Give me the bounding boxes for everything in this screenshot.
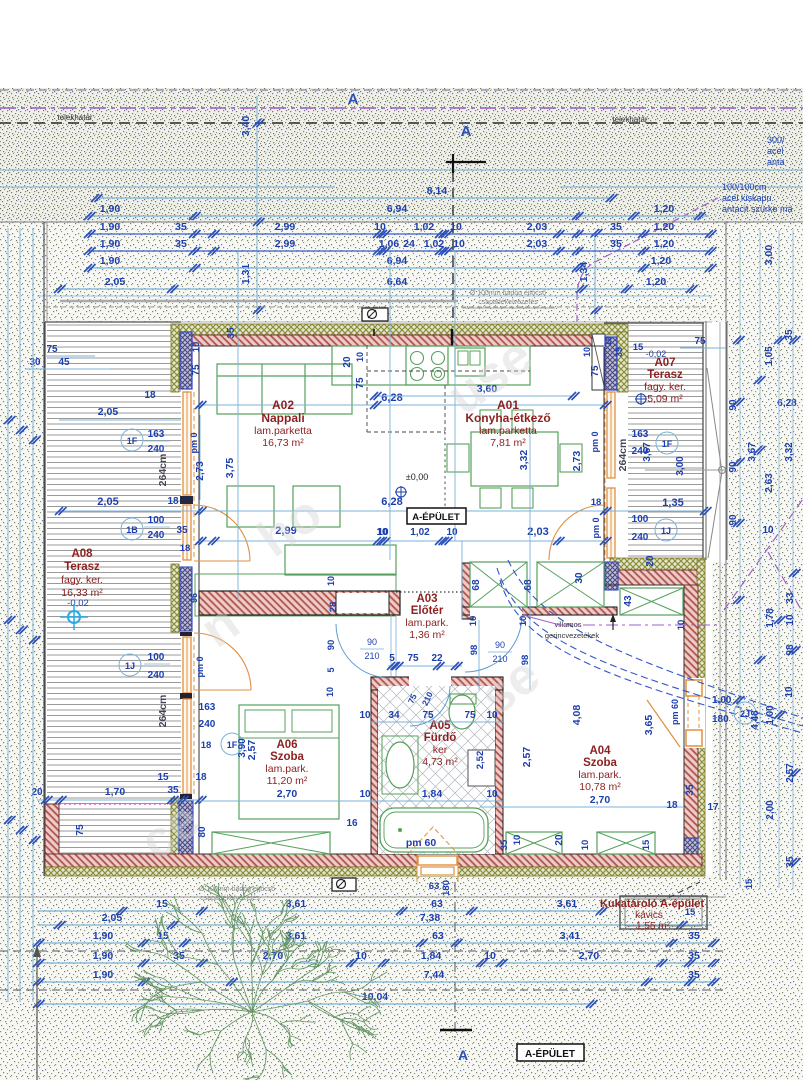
svg-text:35: 35 (785, 856, 796, 868)
svg-text:10: 10 (326, 576, 336, 586)
svg-text:fagy. ker.: fagy. ker. (61, 574, 103, 586)
svg-text:2,70: 2,70 (277, 788, 298, 800)
svg-text:20: 20 (342, 356, 353, 368)
svg-text:240: 240 (148, 530, 165, 541)
svg-text:16,73 m²: 16,73 m² (262, 437, 304, 449)
svg-text:10: 10 (453, 238, 465, 250)
svg-text:1,20: 1,20 (654, 203, 675, 215)
svg-text:1,84: 1,84 (421, 950, 442, 962)
svg-text:264cm: 264cm (617, 439, 629, 472)
svg-text:1,06: 1,06 (379, 238, 400, 250)
svg-text:Előtér: Előtér (411, 605, 444, 617)
svg-text:2,73: 2,73 (571, 451, 583, 472)
svg-text:90: 90 (728, 399, 739, 411)
svg-text:telekhatár: telekhatár (612, 115, 647, 124)
svg-text:1F: 1F (127, 436, 138, 446)
svg-text:pm 60: pm 60 (670, 699, 680, 725)
svg-text:33: 33 (785, 592, 796, 604)
svg-text:300/: 300/ (767, 135, 785, 145)
svg-text:18: 18 (144, 390, 156, 401)
svg-text:10: 10 (325, 687, 335, 697)
svg-text:3,67: 3,67 (747, 442, 758, 462)
svg-text:35: 35 (173, 950, 185, 962)
svg-text:1,36 m²: 1,36 m² (409, 629, 445, 641)
svg-text:lam.parketta: lam.parketta (479, 425, 537, 437)
svg-text:18: 18 (201, 740, 212, 751)
svg-text:lam.park.: lam.park. (405, 617, 448, 629)
svg-text:3,40: 3,40 (240, 116, 252, 137)
svg-text:2,70: 2,70 (590, 794, 611, 806)
svg-text:10: 10 (486, 789, 498, 800)
svg-text:Szoba: Szoba (270, 751, 304, 763)
svg-text:7,81 m²: 7,81 m² (490, 437, 526, 449)
svg-text:±0,00: ±0,00 (406, 472, 428, 482)
svg-text:90: 90 (367, 637, 377, 647)
svg-text:pm 0: pm 0 (195, 656, 205, 677)
svg-text:10: 10 (359, 710, 371, 721)
svg-text:pm 0: pm 0 (590, 431, 600, 452)
svg-text:35: 35 (610, 238, 622, 250)
svg-text:1,34: 1,34 (578, 262, 590, 283)
svg-text:75: 75 (75, 824, 86, 836)
svg-text:75: 75 (590, 365, 601, 377)
svg-text:10: 10 (359, 789, 371, 800)
svg-text:4,48: 4,48 (750, 710, 761, 730)
svg-text:1F: 1F (662, 439, 673, 449)
svg-text:A: A (461, 123, 472, 140)
svg-text:35: 35 (175, 238, 187, 250)
svg-text:63: 63 (431, 898, 443, 910)
svg-text:2,05: 2,05 (105, 276, 126, 288)
svg-text:Terasz: Terasz (647, 369, 683, 381)
svg-text:Terasz: Terasz (64, 561, 100, 573)
svg-text:10: 10 (762, 525, 774, 536)
svg-text:98: 98 (785, 644, 796, 656)
svg-text:gerincvezetékek: gerincvezetékek (545, 631, 599, 640)
svg-text:A02: A02 (272, 398, 294, 412)
svg-text:10: 10 (355, 352, 365, 362)
svg-text:90: 90 (495, 640, 505, 650)
svg-text:15: 15 (157, 772, 169, 783)
svg-text:-0,02: -0,02 (646, 349, 667, 359)
svg-text:100: 100 (148, 652, 165, 663)
svg-text:35: 35 (610, 221, 622, 233)
svg-text:10: 10 (784, 686, 795, 698)
svg-text:-0,02: -0,02 (67, 598, 89, 609)
svg-text:63: 63 (429, 881, 440, 892)
svg-text:264cm: 264cm (157, 695, 169, 728)
svg-text:6,28: 6,28 (381, 392, 402, 404)
svg-text:75: 75 (46, 344, 58, 355)
svg-text:csapadékelvezetés: csapadékelvezetés (478, 299, 538, 306)
svg-text:75: 75 (191, 364, 202, 376)
svg-text:15: 15 (633, 342, 644, 353)
svg-text:A-ÉPÜLET: A-ÉPÜLET (525, 1047, 575, 1060)
svg-text:30: 30 (574, 572, 585, 584)
svg-text:1,90: 1,90 (93, 950, 114, 962)
svg-text:A06: A06 (276, 739, 297, 751)
svg-text:1,31: 1,31 (240, 264, 252, 285)
svg-text:A-ÉPÜLET: A-ÉPÜLET (412, 512, 460, 523)
svg-text:1,55 m²: 1,55 m² (636, 921, 671, 932)
svg-text:3,32: 3,32 (518, 450, 530, 471)
svg-text:ker: ker (433, 744, 448, 756)
svg-text:1,90: 1,90 (93, 969, 114, 981)
svg-text:1,20: 1,20 (651, 255, 672, 267)
svg-text:10: 10 (484, 950, 496, 962)
svg-text:A: A (458, 1047, 468, 1063)
svg-text:1,35: 1,35 (662, 497, 683, 509)
svg-text:75: 75 (422, 710, 434, 721)
svg-text:90: 90 (728, 461, 739, 473)
svg-text:1,90: 1,90 (100, 221, 121, 233)
svg-text:75: 75 (464, 710, 476, 721)
svg-text:2,57: 2,57 (521, 747, 533, 768)
svg-text:10: 10 (580, 840, 591, 851)
svg-text:3,61: 3,61 (557, 898, 578, 910)
svg-text:1,90: 1,90 (100, 238, 121, 250)
svg-text:90: 90 (728, 514, 739, 526)
svg-text:2,00: 2,00 (765, 800, 776, 820)
svg-text:35: 35 (176, 525, 188, 536)
svg-text:10: 10 (582, 347, 592, 357)
svg-text:3,67: 3,67 (642, 442, 653, 462)
svg-text:1,84: 1,84 (422, 788, 443, 800)
svg-text:100: 100 (148, 515, 165, 526)
svg-text:7,38: 7,38 (420, 912, 441, 924)
svg-text:acél kiskapu: acél kiskapu (722, 193, 772, 203)
svg-text:75: 75 (694, 336, 706, 347)
svg-text:68: 68 (471, 579, 482, 591)
svg-text:csapadékelvezetés: csapadékelvezetés (200, 895, 260, 902)
svg-text:35: 35 (685, 784, 696, 796)
svg-text:35: 35 (688, 969, 700, 981)
svg-text:2,99: 2,99 (275, 238, 296, 250)
svg-text:163: 163 (148, 429, 165, 440)
svg-text:A: A (348, 91, 359, 108)
svg-text:telekhatár: telekhatár (57, 113, 92, 122)
svg-text:210: 210 (364, 651, 379, 661)
svg-text:1,78: 1,78 (765, 608, 776, 628)
svg-text:1,05: 1,05 (764, 346, 775, 366)
svg-text:lam.parketta: lam.parketta (254, 425, 312, 437)
svg-text:10: 10 (450, 221, 462, 233)
svg-text:8,14: 8,14 (427, 185, 448, 197)
svg-text:18: 18 (666, 800, 678, 811)
svg-text:96: 96 (189, 593, 199, 603)
svg-text:2,05: 2,05 (102, 912, 123, 924)
svg-text:10: 10 (785, 614, 796, 626)
svg-text:Fürdő: Fürdő (424, 732, 457, 744)
svg-text:43: 43 (623, 595, 634, 607)
svg-text:3,75: 3,75 (224, 458, 236, 479)
svg-text:240: 240 (148, 670, 165, 681)
svg-text:3,00: 3,00 (763, 245, 775, 266)
svg-text:7,44: 7,44 (424, 969, 445, 981)
svg-text:35: 35 (688, 950, 700, 962)
svg-text:1,90: 1,90 (100, 255, 121, 267)
svg-text:A04: A04 (589, 745, 611, 757)
svg-text:1,02: 1,02 (410, 527, 430, 538)
svg-text:10: 10 (376, 527, 388, 538)
svg-text:18: 18 (167, 496, 179, 507)
svg-text:1,90: 1,90 (100, 203, 121, 215)
svg-text:35: 35 (226, 327, 237, 339)
svg-text:1,20: 1,20 (654, 238, 675, 250)
svg-text:anta: anta (767, 157, 785, 167)
svg-text:180: 180 (712, 714, 729, 725)
svg-text:28: 28 (328, 602, 339, 613)
svg-text:35: 35 (614, 347, 624, 357)
svg-text:pm 0: pm 0 (189, 432, 199, 453)
svg-text:acél: acél (767, 146, 784, 156)
svg-text:68: 68 (523, 579, 534, 591)
svg-text:10: 10 (355, 950, 367, 962)
svg-text:5: 5 (326, 667, 336, 672)
svg-text:3,41: 3,41 (560, 930, 581, 942)
svg-text:10,78 m²: 10,78 m² (579, 781, 621, 793)
svg-text:2,73: 2,73 (195, 461, 206, 481)
svg-text:35: 35 (784, 329, 795, 341)
svg-text:1,70: 1,70 (105, 786, 126, 798)
svg-text:1,02: 1,02 (414, 221, 435, 233)
svg-text:15: 15 (685, 907, 696, 918)
svg-text:2,03: 2,03 (527, 221, 548, 233)
svg-text:Nappali: Nappali (261, 411, 304, 425)
svg-text:6,94: 6,94 (387, 203, 408, 215)
svg-text:240: 240 (199, 719, 216, 730)
svg-text:1,90: 1,90 (93, 930, 114, 942)
svg-text:2,63: 2,63 (764, 473, 775, 493)
svg-text:4,08: 4,08 (571, 705, 583, 726)
svg-text:180: 180 (441, 880, 452, 896)
svg-text:240: 240 (148, 444, 165, 455)
svg-text:75: 75 (355, 377, 366, 389)
svg-text:2,70: 2,70 (579, 950, 600, 962)
svg-text:A08: A08 (71, 548, 93, 560)
svg-text:10: 10 (374, 221, 386, 233)
svg-text:100/100cm: 100/100cm (722, 182, 767, 192)
svg-text:163: 163 (199, 702, 216, 713)
svg-text:63: 63 (432, 930, 444, 942)
svg-text:2,52: 2,52 (475, 751, 486, 770)
svg-text:1,02: 1,02 (424, 238, 445, 250)
svg-text:kávics: kávics (635, 910, 663, 921)
svg-text:10: 10 (603, 336, 613, 346)
svg-text:18: 18 (180, 543, 191, 554)
svg-text:pm 60: pm 60 (406, 837, 437, 849)
svg-text:1,20: 1,20 (654, 221, 675, 233)
svg-text:2,03: 2,03 (527, 526, 548, 538)
svg-text:2,99: 2,99 (275, 221, 296, 233)
svg-text:1J: 1J (125, 661, 135, 671)
svg-text:18: 18 (195, 772, 207, 783)
svg-text:3,32: 3,32 (784, 442, 795, 462)
svg-text:1J: 1J (661, 526, 671, 536)
svg-text:15: 15 (641, 839, 652, 850)
svg-text:100: 100 (632, 514, 649, 525)
svg-text:antacit szürke má: antacit szürke má (722, 204, 793, 214)
svg-text:17: 17 (707, 802, 719, 813)
svg-text:45: 45 (58, 357, 70, 368)
svg-text:2,57: 2,57 (785, 763, 796, 783)
svg-text:1,00: 1,00 (712, 695, 732, 706)
svg-text:90: 90 (326, 640, 337, 651)
svg-text:15: 15 (744, 878, 755, 889)
svg-text:4,73 m²: 4,73 m² (422, 756, 458, 768)
svg-text:Szoba: Szoba (583, 757, 617, 769)
svg-text:18: 18 (591, 497, 602, 508)
svg-text:35: 35 (499, 839, 510, 850)
svg-text:10: 10 (446, 527, 458, 538)
svg-text:10: 10 (191, 342, 202, 353)
svg-text:30: 30 (29, 357, 41, 368)
svg-text:3,90: 3,90 (237, 738, 248, 758)
svg-text:fagy. ker.: fagy. ker. (644, 381, 686, 393)
svg-text:3,00: 3,00 (675, 456, 686, 476)
svg-text:1,20: 1,20 (646, 276, 667, 288)
svg-text:10: 10 (468, 616, 479, 627)
svg-text:A03: A03 (416, 593, 437, 605)
svg-text:lam.park.: lam.park. (578, 769, 621, 781)
svg-text:163: 163 (632, 429, 649, 440)
svg-text:98: 98 (469, 645, 480, 656)
svg-text:3,65: 3,65 (643, 715, 655, 736)
svg-text:2,03: 2,03 (527, 238, 548, 250)
svg-text:34: 34 (388, 710, 400, 721)
svg-text:264cm: 264cm (157, 454, 169, 487)
svg-text:1B: 1B (126, 525, 138, 535)
svg-text:35: 35 (688, 930, 700, 942)
svg-text:1,00: 1,00 (765, 705, 776, 725)
svg-text:2J: 2J (740, 709, 750, 719)
svg-text:10: 10 (512, 835, 523, 846)
svg-text:5,09 m²: 5,09 m² (647, 393, 683, 405)
svg-text:6,28: 6,28 (777, 398, 797, 409)
svg-text:2,05: 2,05 (98, 406, 119, 418)
svg-text:20: 20 (554, 834, 565, 846)
svg-text:11,20 m²: 11,20 m² (267, 775, 308, 787)
svg-text:240: 240 (632, 532, 649, 543)
svg-text:lam.park.: lam.park. (265, 763, 308, 775)
svg-text:6,28: 6,28 (381, 496, 402, 508)
svg-text:2,05: 2,05 (97, 496, 118, 508)
svg-text:20: 20 (645, 555, 656, 567)
svg-text:75: 75 (407, 653, 419, 664)
svg-text:35: 35 (175, 221, 187, 233)
svg-text:24: 24 (403, 238, 415, 250)
svg-text:16: 16 (346, 818, 358, 829)
svg-text:pm 0: pm 0 (591, 517, 601, 538)
